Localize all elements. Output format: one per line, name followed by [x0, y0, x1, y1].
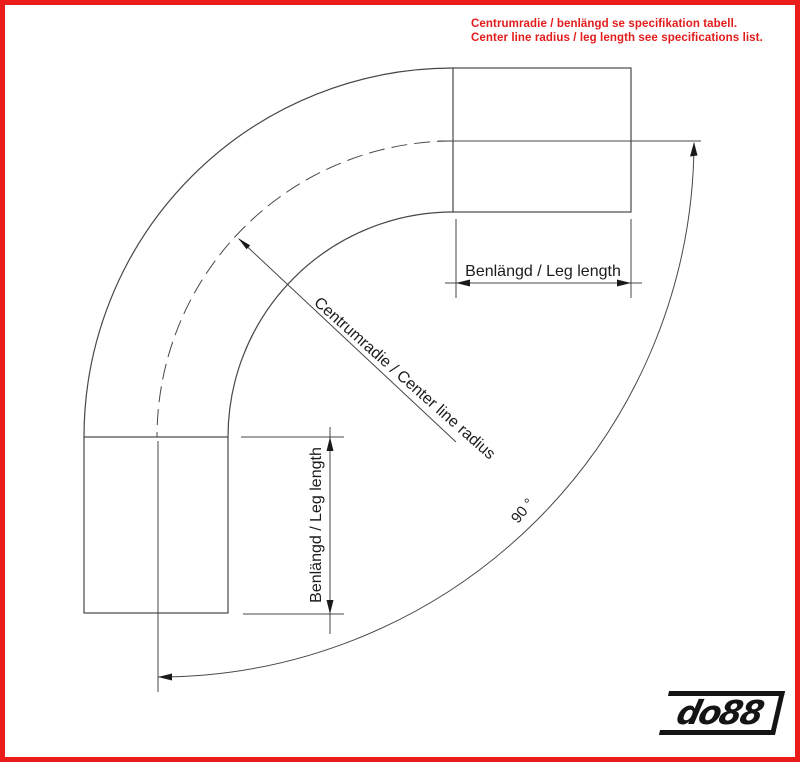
left-leg-length-label: Benlängd / Leg length [308, 447, 326, 603]
do88-logo: do88 [659, 691, 785, 735]
pipe-left-leg-outline [84, 437, 228, 613]
left-leg-arrowhead-top [327, 437, 334, 451]
pipe-top-leg-outline [453, 68, 631, 212]
top-leg-length-label: Benlängd / Leg length [465, 263, 621, 281]
angle-arc-arrowhead-bottom [158, 674, 172, 681]
angle-arc-arrowhead-top [690, 142, 698, 157]
do88-logo-text: do88 [673, 696, 765, 731]
drawing-sheet: Centrumradie / benlängd se specifikation… [0, 0, 800, 762]
left-leg-arrowhead-bottom [327, 600, 334, 614]
